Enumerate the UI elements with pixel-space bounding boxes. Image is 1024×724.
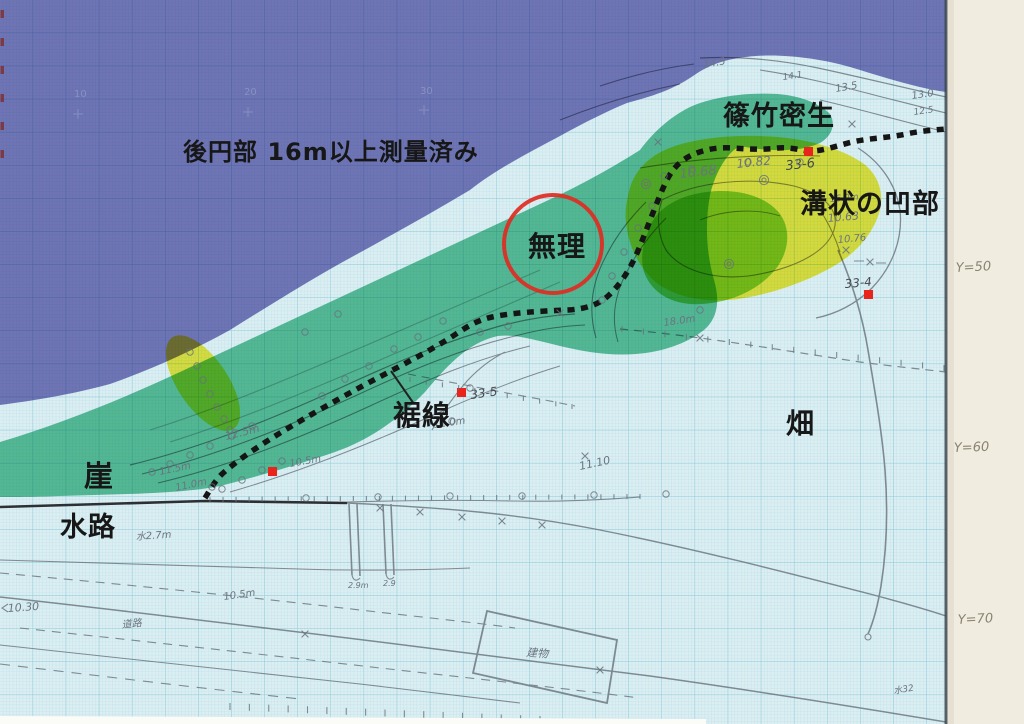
grid-number: 20 — [244, 87, 257, 98]
width-note: 2.9m — [348, 581, 369, 590]
scanned-survey-map: 14.5 14.1 13.5 13.0 12.5 10.68 10.82 10.… — [0, 0, 1024, 724]
margin-coordinate-y70: Y=70 — [957, 611, 993, 628]
survey-point-label-33-4: 33-4 — [844, 275, 872, 291]
label-hem-line: 裾線 — [393, 399, 451, 432]
survey-map-canvas: 14.5 14.1 13.5 13.0 12.5 10.68 10.82 10.… — [0, 0, 1024, 724]
grid-number: 10 — [74, 89, 87, 100]
elevation-note: 10.30 — [7, 600, 39, 615]
label-impossible: 無理 — [528, 230, 586, 263]
label-surveyed-note: 後円部 16m以上測量済み — [183, 138, 479, 166]
width-note: 2.9 — [383, 579, 396, 588]
label-cliff: 崖 — [84, 459, 114, 493]
grid-number: 30 — [420, 86, 433, 97]
label-waterway: 水路 — [60, 511, 116, 543]
road-note: 道路 — [121, 617, 143, 631]
survey-marker-33-6 — [804, 147, 813, 156]
label-groove-depression: 溝状の凹部 — [800, 188, 940, 220]
margin-coordinate-y50: Y=50 — [955, 259, 991, 276]
right-margin-strip: Y=50 Y=60 Y=70 — [945, 0, 1024, 724]
label-field: 畑 — [786, 407, 815, 440]
building-note: 建物 — [526, 646, 551, 661]
label-dense-bamboo: 篠竹密生 — [723, 100, 835, 132]
survey-marker-unlabeled — [268, 467, 277, 476]
margin-coordinate-y60: Y=60 — [954, 440, 990, 456]
survey-marker-33-4 — [864, 290, 873, 299]
width-note: 水2.7m — [135, 529, 172, 543]
